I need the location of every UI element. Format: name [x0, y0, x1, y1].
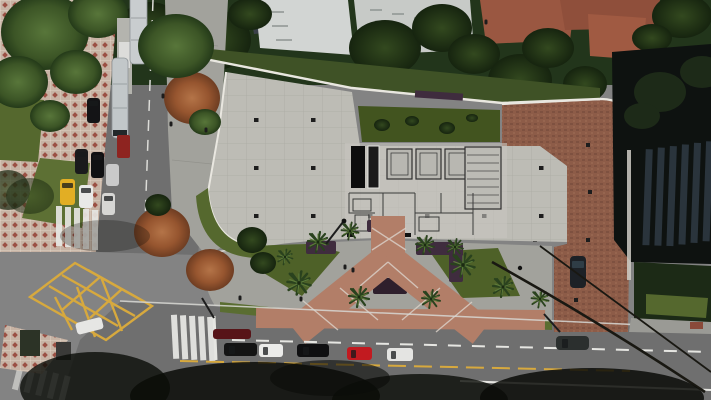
aerial-site-photo — [0, 0, 711, 400]
rust-tree-curve-2 — [186, 249, 234, 291]
terrace-parked-car — [570, 256, 586, 288]
elevator-bank — [387, 149, 470, 179]
overhanging-tree — [138, 14, 214, 78]
shaft-2 — [368, 146, 379, 188]
sidewalk-patch — [690, 322, 703, 329]
bus-2 — [112, 58, 128, 138]
stair-core — [465, 147, 501, 209]
lit-wall-edge — [627, 150, 631, 280]
kiosk — [20, 330, 40, 356]
east-lawn — [646, 294, 708, 318]
shaft-1 — [351, 146, 365, 188]
scene-canvas — [0, 0, 711, 400]
